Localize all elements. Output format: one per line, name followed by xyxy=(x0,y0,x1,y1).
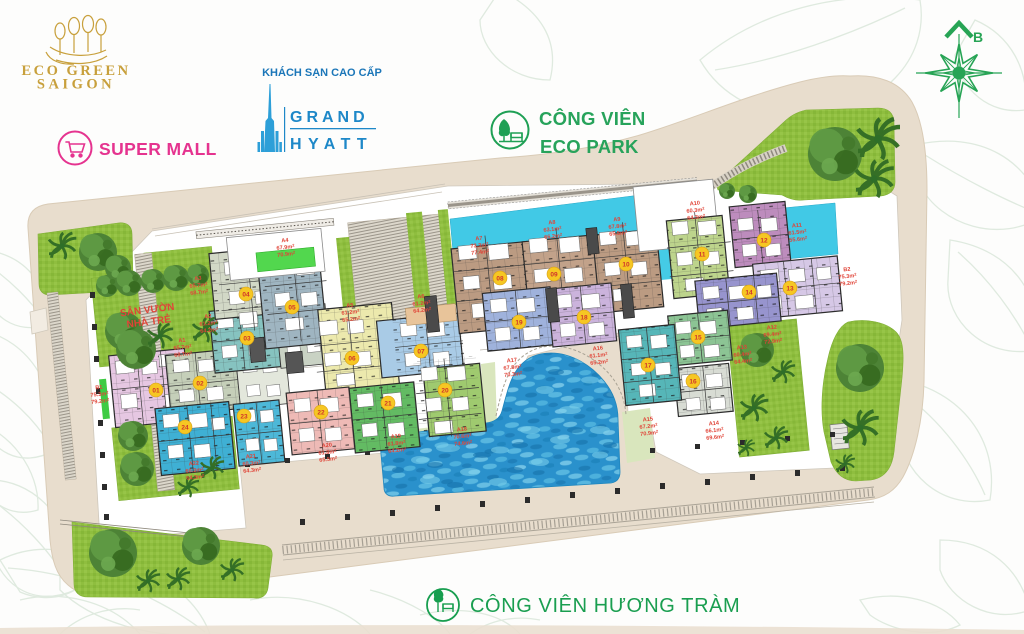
svg-text:A1: A1 xyxy=(178,338,186,345)
svg-text:20: 20 xyxy=(441,387,449,394)
svg-text:A15: A15 xyxy=(643,417,654,424)
svg-text:06: 06 xyxy=(348,355,356,362)
svg-text:21: 21 xyxy=(384,400,392,407)
svg-text:15: 15 xyxy=(694,334,702,341)
svg-text:A8: A8 xyxy=(548,220,556,227)
svg-text:09: 09 xyxy=(550,271,558,278)
svg-text:B1: B1 xyxy=(95,385,103,392)
svg-text:CÔNG VIÊN HƯƠNG TRÀM: CÔNG VIÊN HƯƠNG TRÀM xyxy=(470,594,740,617)
svg-text:A10: A10 xyxy=(690,201,701,208)
svg-text:10: 10 xyxy=(622,261,630,268)
svg-text:A12: A12 xyxy=(767,325,778,332)
svg-text:13: 13 xyxy=(786,285,794,292)
svg-text:KHÁCH SẠN CAO CẤP: KHÁCH SẠN CAO CẤP xyxy=(262,66,382,79)
svg-text:A17: A17 xyxy=(507,358,518,365)
svg-text:ECO PARK: ECO PARK xyxy=(540,136,639,157)
svg-text:05: 05 xyxy=(288,304,296,311)
svg-text:02: 02 xyxy=(196,380,204,387)
svg-text:A20: A20 xyxy=(322,443,333,450)
svg-text:GRAND: GRAND xyxy=(290,109,369,126)
svg-text:17: 17 xyxy=(644,362,652,369)
svg-text:B: B xyxy=(973,29,983,45)
svg-text:22: 22 xyxy=(317,409,325,416)
svg-text:23: 23 xyxy=(240,413,248,420)
svg-text:12: 12 xyxy=(760,237,768,244)
svg-text:07: 07 xyxy=(417,348,425,355)
svg-text:A6: A6 xyxy=(417,294,425,301)
svg-text:01: 01 xyxy=(152,387,160,394)
svg-text:A11: A11 xyxy=(792,223,802,230)
svg-text:11: 11 xyxy=(699,251,706,258)
svg-text:16: 16 xyxy=(689,378,697,385)
svg-text:03: 03 xyxy=(243,335,251,342)
svg-text:A2: A2 xyxy=(204,314,212,321)
svg-text:14: 14 xyxy=(745,289,753,296)
svg-text:HYATT: HYATT xyxy=(290,136,373,153)
svg-text:B2: B2 xyxy=(843,267,851,274)
svg-text:18: 18 xyxy=(580,314,588,321)
svg-text:24: 24 xyxy=(181,424,189,431)
svg-text:04: 04 xyxy=(242,291,250,298)
svg-text:A19: A19 xyxy=(391,434,402,441)
svg-text:A9: A9 xyxy=(613,217,621,224)
svg-text:A18: A18 xyxy=(457,427,468,434)
svg-text:A22: A22 xyxy=(189,461,200,468)
svg-text:A13: A13 xyxy=(737,345,748,352)
svg-text:08: 08 xyxy=(496,275,504,282)
svg-text:A5: A5 xyxy=(346,303,354,310)
svg-text:19: 19 xyxy=(515,319,523,326)
svg-text:SAIGON: SAIGON xyxy=(37,77,115,93)
svg-text:A7: A7 xyxy=(475,236,483,243)
svg-text:SUPER MALL: SUPER MALL xyxy=(99,139,217,159)
svg-text:A14: A14 xyxy=(709,420,721,427)
svg-text:A3: A3 xyxy=(194,276,202,283)
svg-text:A16: A16 xyxy=(593,346,604,353)
svg-text:A21: A21 xyxy=(246,454,257,461)
svg-text:CÔNG VIÊN: CÔNG VIÊN xyxy=(539,108,646,129)
